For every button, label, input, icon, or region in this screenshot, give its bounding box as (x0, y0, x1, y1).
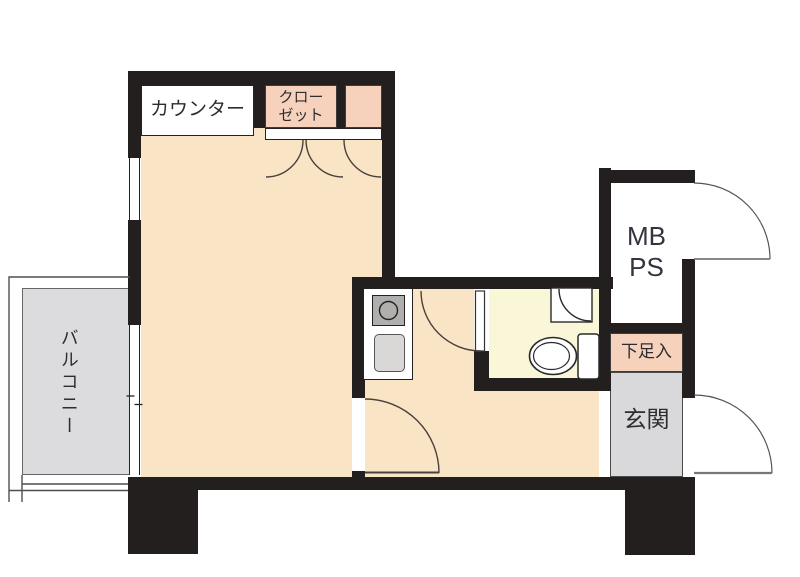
shoe-cabinet-label-text: 下足入 (621, 342, 672, 362)
wall-left-mid (128, 220, 141, 325)
wall-bottom (128, 477, 695, 490)
wall-bathroom-bottom (474, 378, 611, 391)
closet-door-track (265, 128, 382, 140)
mbps-label-line2: PS (629, 252, 664, 283)
sliding-window-icon (129, 325, 140, 475)
balcony-label: バルコニー (50, 318, 86, 448)
counter-label: カウンター (141, 85, 254, 136)
pillar-bottom-left (128, 477, 198, 554)
mbps-door-icon (694, 183, 770, 259)
wall-living-right (382, 71, 395, 289)
mbps-label: MB PS (611, 214, 682, 290)
closet-label-line1: クロー (278, 89, 323, 107)
wall-mbps-top (599, 170, 695, 183)
closet-label: クロー ゼット (265, 85, 337, 128)
entrance-door-icon (694, 395, 772, 473)
balcony-label-text: バルコニー (57, 328, 79, 438)
living-room-floor-lower (141, 277, 352, 477)
wall-shoe-cabinet-top (610, 323, 683, 333)
entrance-label: 玄関 (610, 395, 683, 445)
floor-plan: カウンター クロー ゼット MB PS 下足入 玄関 バルコニー (0, 0, 800, 577)
bathroom-floor (489, 289, 599, 378)
wall-closet-divider (337, 71, 345, 128)
wall-right-mid (682, 259, 695, 398)
hall-floor (474, 391, 599, 477)
closet-box-small (345, 85, 382, 128)
mbps-label-line1: MB (627, 221, 666, 252)
entrance-label-text: 玄関 (624, 406, 670, 434)
fixed-window-icon (129, 158, 140, 220)
kitchen-sink-icon (374, 334, 405, 372)
wall-left-upper (128, 71, 141, 158)
counter-label-text: カウンター (150, 99, 245, 122)
pillar-bottom-right (625, 477, 695, 555)
shoe-cabinet-label: 下足入 (610, 333, 683, 372)
stove-burner-icon (372, 295, 405, 326)
closet-label-line2: ゼット (278, 107, 323, 125)
